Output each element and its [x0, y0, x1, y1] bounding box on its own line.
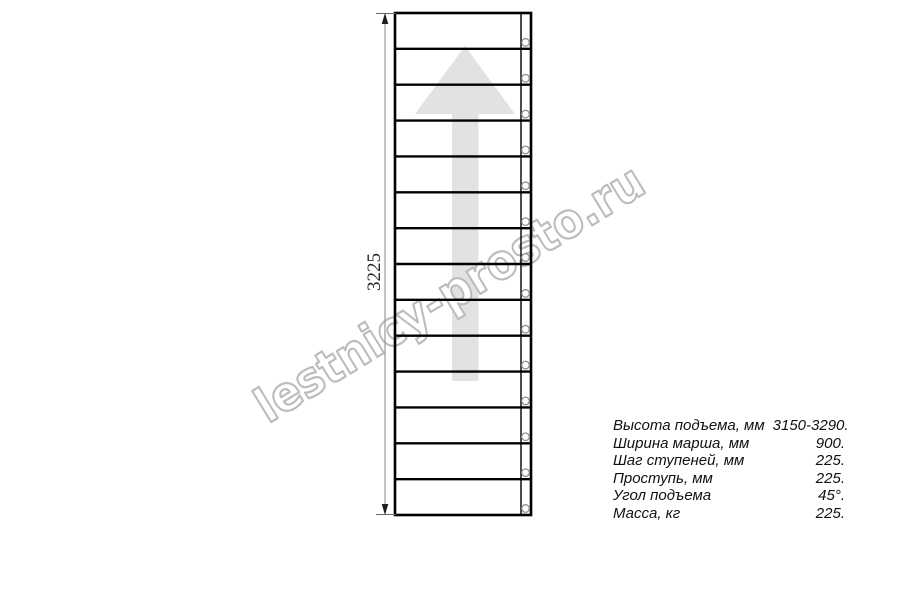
screw-circle [522, 110, 530, 118]
spec-value: 225. [816, 452, 845, 470]
height-dimension: 3225 [364, 13, 396, 515]
dimension-arrow-down-icon [382, 504, 389, 515]
screw-circle [522, 505, 530, 513]
screw-circle [522, 290, 530, 298]
spec-value: 225. [816, 505, 845, 523]
spec-label: Проступь, мм [613, 470, 721, 488]
dimension-label: 3225 [364, 253, 385, 291]
screw-circle [522, 325, 530, 333]
spec-row: Высота подъема, мм3150-3290. [613, 417, 845, 435]
spec-label: Угол подъема [613, 487, 719, 505]
screw-circle [522, 74, 530, 82]
spec-row: Шаг ступеней, мм225. [613, 452, 845, 470]
spec-label: Шаг ступеней, мм [613, 452, 752, 470]
spec-row: Ширина марша, мм900. [613, 435, 845, 453]
spec-value: 3150-3290. [773, 417, 849, 435]
screw-circle [522, 254, 530, 262]
watermark-text: lestnicy-prosto.ru [245, 153, 655, 434]
screw-circle [522, 39, 530, 47]
spec-value: 900. [816, 435, 845, 453]
spec-label: Ширина марша, мм [613, 435, 757, 453]
specs-table: Высота подъема, мм3150-3290.Ширина марша… [613, 417, 845, 523]
spec-row: Угол подъема45°. [613, 487, 845, 505]
spec-value: 225. [816, 470, 845, 488]
staircase-drawing-page: lestnicy-prosto.ru 3225 Высота подъема, … [0, 0, 900, 600]
screw-circle [522, 361, 530, 369]
spec-row: Масса, кг225. [613, 505, 845, 523]
screw-circle [522, 218, 530, 226]
screw-circle [522, 397, 530, 405]
screw-circle [522, 469, 530, 477]
screw-circle [522, 182, 530, 190]
spec-row: Проступь, мм225. [613, 470, 845, 488]
spec-value: 45°. [818, 487, 845, 505]
screw-circle [522, 433, 530, 441]
spec-label: Масса, кг [613, 505, 688, 523]
spec-label: Высота подъема, мм [613, 417, 773, 435]
dimension-arrow-up-icon [382, 13, 389, 24]
screw-circle [522, 146, 530, 154]
